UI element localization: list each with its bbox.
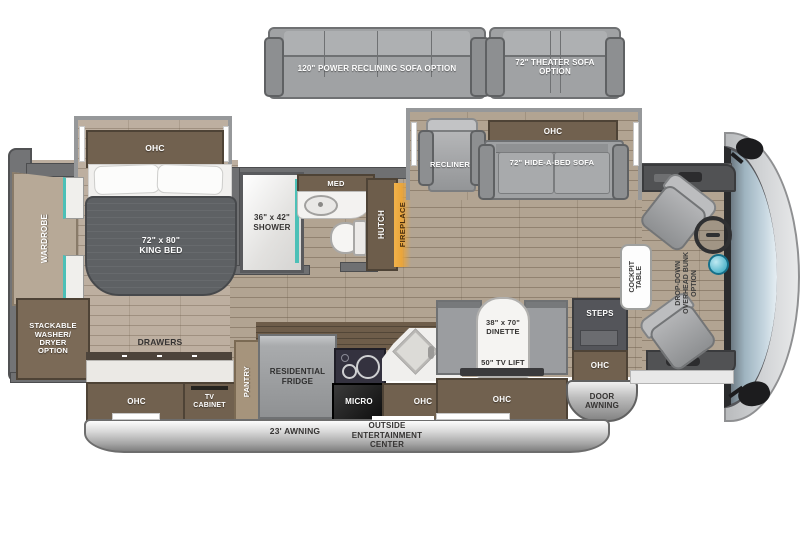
bed-pillow bbox=[157, 164, 224, 195]
tv-cabinet-label: CABINET bbox=[193, 402, 226, 410]
wardrobe-label: WARDROBE bbox=[41, 214, 50, 263]
drawer-handle bbox=[122, 355, 127, 357]
hutch-label: HUTCH bbox=[378, 210, 387, 239]
entry-steps: STEPS bbox=[572, 298, 628, 354]
tv-lift bbox=[460, 368, 544, 376]
oec-marker bbox=[372, 416, 434, 420]
tv-cabinet-label: TV bbox=[205, 394, 214, 402]
living-slide-window bbox=[633, 122, 639, 166]
burner-large bbox=[356, 355, 380, 379]
tv-cabinet: TV CABINET bbox=[183, 382, 236, 422]
power-reclining-sofa-option: 120" POWER RECLINING SOFA OPTION bbox=[268, 27, 486, 99]
power-sofa-label: 120" POWER RECLINING SOFA OPTION bbox=[270, 65, 484, 74]
tv-slot bbox=[191, 386, 228, 390]
tv-lift-label: 50" TV LIFT bbox=[470, 359, 536, 368]
steering-hub bbox=[706, 233, 720, 237]
theater-sofa-option: 72" THEATER SOFA OPTION bbox=[489, 27, 621, 99]
fridge-label: FRIDGE bbox=[282, 377, 313, 386]
bed-pillow bbox=[94, 164, 161, 195]
sofa-armrest bbox=[478, 144, 495, 200]
fridge-label: RESIDENTIAL bbox=[270, 367, 326, 376]
med-label: MED bbox=[327, 180, 344, 188]
sink-drain bbox=[318, 202, 323, 207]
bedroom-overhead-cabinet: OHC bbox=[86, 130, 224, 168]
hide-a-bed-sofa-label: 72" HIDE-A-BED SOFA bbox=[484, 159, 620, 167]
cooktop-knob bbox=[341, 354, 349, 362]
hide-a-bed-sofa bbox=[484, 140, 624, 200]
bathroom-sink bbox=[304, 195, 338, 216]
entry-door-sill bbox=[630, 370, 734, 384]
washer-dryer-option: STACKABLE WASHER/ DRYER OPTION bbox=[16, 298, 90, 380]
burner-small bbox=[342, 364, 357, 379]
shower-label: SHOWER bbox=[253, 223, 290, 232]
cockpit-table: COCKPIT TABLE bbox=[620, 244, 652, 310]
ohc-label: OHC bbox=[414, 398, 432, 407]
cockpit-table-label: COCKPIT bbox=[629, 261, 636, 293]
bedroom-ohc-label: OHC bbox=[145, 144, 165, 154]
sofa-backrest bbox=[503, 31, 607, 57]
floorplan-canvas: 120" POWER RECLINING SOFA OPTION 72" THE… bbox=[0, 0, 800, 545]
sofa-armrest bbox=[612, 144, 629, 200]
dinette-table: 38" x 70" DINETTE 50" TV LIFT bbox=[476, 297, 530, 378]
theater-sofa-label: 72" THEATER SOFA OPTION bbox=[491, 59, 619, 77]
cockpit-table-label: TABLE bbox=[636, 266, 643, 289]
awning-marker bbox=[112, 413, 160, 420]
shower-size: 36" x 42" bbox=[254, 213, 290, 222]
pantry-label: PANTRY bbox=[243, 366, 251, 397]
bunk-label-line: OVERHEAD BUNK bbox=[683, 252, 690, 314]
king-bed: 72" x 80" KING BED bbox=[85, 196, 237, 296]
bunk-label-line: DROP-DOWN bbox=[675, 261, 682, 306]
door-awning-label: DOOR bbox=[590, 392, 615, 401]
living-ohc-label: OHC bbox=[544, 128, 562, 137]
ohc-entry: OHC bbox=[572, 350, 628, 383]
drawer-handle bbox=[192, 355, 197, 357]
residential-fridge: RESIDENTIAL FRIDGE bbox=[258, 334, 337, 419]
steps-label: STEPS bbox=[574, 310, 626, 319]
recliner-label: RECLINER bbox=[414, 161, 486, 169]
drawer-handle bbox=[157, 355, 162, 357]
bedroom-slide-window bbox=[79, 126, 85, 162]
bench-back bbox=[526, 302, 566, 308]
ohc-label: OHC bbox=[591, 362, 609, 371]
door-awning: DOOR AWNING bbox=[566, 380, 638, 422]
ohc-label: OHC bbox=[127, 398, 145, 407]
washer-label-line: OPTION bbox=[38, 347, 68, 355]
bunk-label-line: OPTION bbox=[691, 270, 698, 297]
nightstand bbox=[63, 177, 84, 219]
dresser-back-rail bbox=[86, 352, 232, 360]
drawers-label: DRAWERS bbox=[100, 338, 220, 348]
door-awning-label: AWNING bbox=[585, 401, 619, 410]
dresser-countertop bbox=[86, 360, 234, 384]
micro-label: MICRO bbox=[345, 398, 373, 407]
dinette-size-label: 38" x 70" DINETTE bbox=[472, 319, 534, 336]
drop-down-bunk-label: DROP-DOWN OVERHEAD BUNK OPTION bbox=[664, 226, 708, 340]
beverage-machine bbox=[708, 254, 729, 275]
awning-marker bbox=[436, 413, 510, 420]
shower: 36" x 42" SHOWER bbox=[240, 172, 304, 273]
living-slide-window bbox=[411, 122, 417, 166]
nightstand bbox=[63, 255, 84, 299]
pantry: PANTRY bbox=[234, 340, 261, 423]
cooktop bbox=[334, 348, 386, 387]
king-bed-label: KING BED bbox=[139, 246, 182, 256]
step-tread bbox=[580, 330, 618, 346]
outside-entertainment-label: OUTSIDE ENTERTAINMENT CENTER bbox=[340, 421, 434, 450]
faucet bbox=[428, 346, 434, 359]
recliner-armrest bbox=[418, 130, 434, 186]
ohc-label: OHC bbox=[493, 396, 511, 405]
toilet-tank bbox=[353, 220, 367, 256]
fireplace-label: FIREPLACE bbox=[398, 202, 407, 247]
bench-back bbox=[438, 302, 480, 308]
